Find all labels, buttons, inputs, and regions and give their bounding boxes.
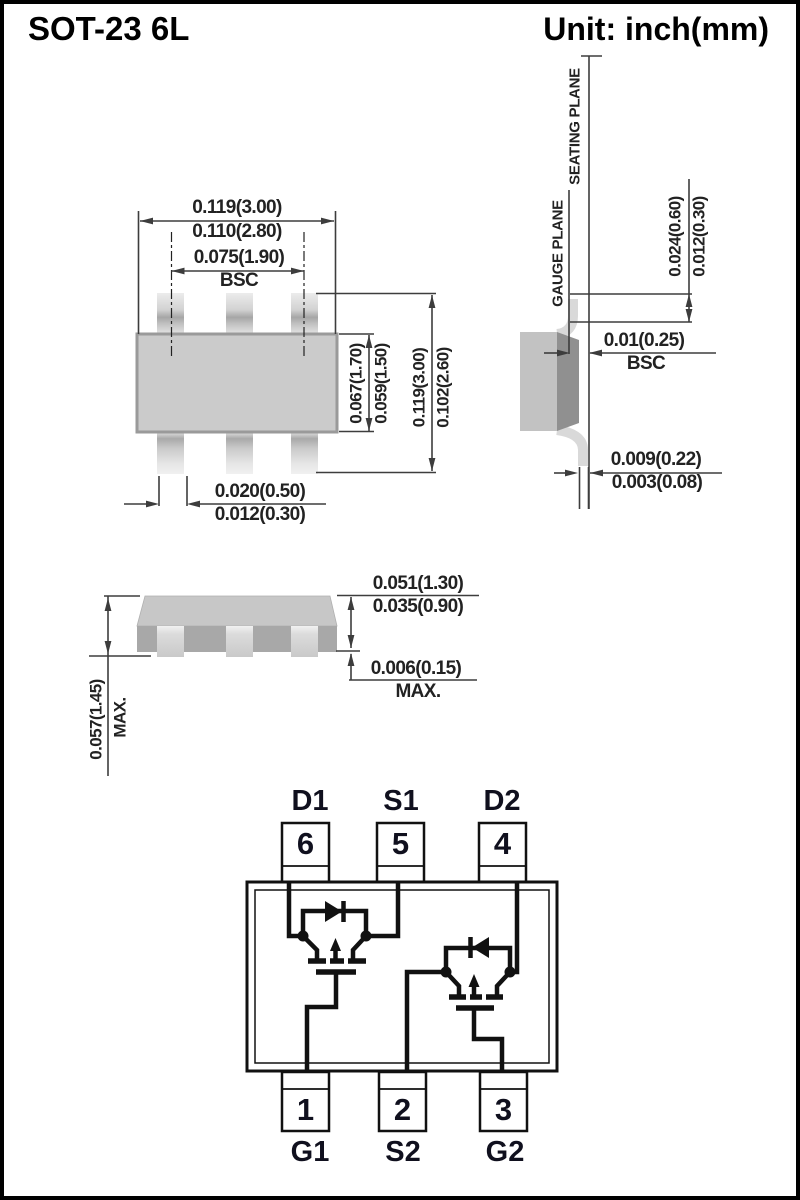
dim-lead-width-min: 0.012(0.30) (180, 504, 340, 526)
package-drawing-page: SOT-23 6L Unit: inch(mm) 0.119(3.00) 0.1… (0, 0, 800, 1200)
dim-lead-thickness-min: 0.003(0.08) (577, 472, 737, 494)
pin-name-g1: G1 (279, 1137, 341, 1167)
dim-body-height-min: 0.035(0.90) (338, 596, 498, 618)
dim-standoff-note: MAX. (338, 681, 498, 703)
pin-number-6: 6 (282, 825, 329, 863)
pin-number-3: 3 (480, 1091, 527, 1129)
pin-name-g2: G2 (474, 1137, 536, 1167)
pinout-schematic (247, 823, 557, 1131)
page-title: SOT-23 6L (28, 10, 189, 48)
dim-body-depth-min: 0.059(1.50) (372, 329, 391, 439)
dim-lead-width-max: 0.020(0.50) (180, 481, 340, 503)
dim-body-depth-max: 0.067(1.70) (347, 329, 366, 439)
dim-overall-width-min: 0.110(2.80) (157, 221, 317, 243)
dim-overall-width-max: 0.119(3.00) (157, 197, 317, 219)
pin-name-d1: D1 (279, 786, 341, 816)
side-view-body (520, 332, 557, 431)
dim-lead-pitch-note: BSC (159, 270, 319, 292)
dim-overall-depth-min: 0.102(2.60) (434, 333, 453, 443)
dim-foot-length-min: 0.012(0.30) (690, 181, 709, 293)
unit-label: Unit: inch(mm) (464, 11, 769, 48)
dim-lead-pitch: 0.075(1.90) (159, 247, 319, 269)
dim-standoff: 0.006(0.15) (336, 658, 496, 680)
pin-name-d2: D2 (471, 786, 533, 816)
pin-name-s2: S2 (372, 1137, 434, 1167)
dim-gauge-offset: 0.01(0.25) (564, 330, 724, 352)
top-view-leads-upper (157, 293, 318, 335)
dim-gauge-offset-note: BSC (566, 353, 726, 375)
top-view-body (137, 334, 337, 432)
pin-number-1: 1 (282, 1091, 329, 1129)
top-view-leads-lower (157, 432, 318, 474)
dim-total-height-note: MAX. (111, 688, 130, 748)
pin-number-2: 2 (379, 1091, 426, 1129)
dim-overall-depth-max: 0.119(3.00) (410, 333, 429, 443)
front-view-leads (157, 626, 318, 657)
dim-lead-thickness-max: 0.009(0.22) (576, 449, 736, 471)
gauge-plane-label: GAUGE PLANE (549, 189, 568, 319)
pin-number-4: 4 (479, 825, 526, 863)
seating-plane-label: SEATING PLANE (566, 57, 585, 197)
pin-name-s1: S1 (370, 786, 432, 816)
dim-foot-length-max: 0.024(0.60) (666, 181, 685, 293)
dim-body-height-max: 0.051(1.30) (338, 573, 498, 595)
pin-number-5: 5 (377, 825, 424, 863)
front-view-top-face (137, 596, 337, 626)
dim-total-height: 0.057(1.45) (87, 660, 106, 780)
